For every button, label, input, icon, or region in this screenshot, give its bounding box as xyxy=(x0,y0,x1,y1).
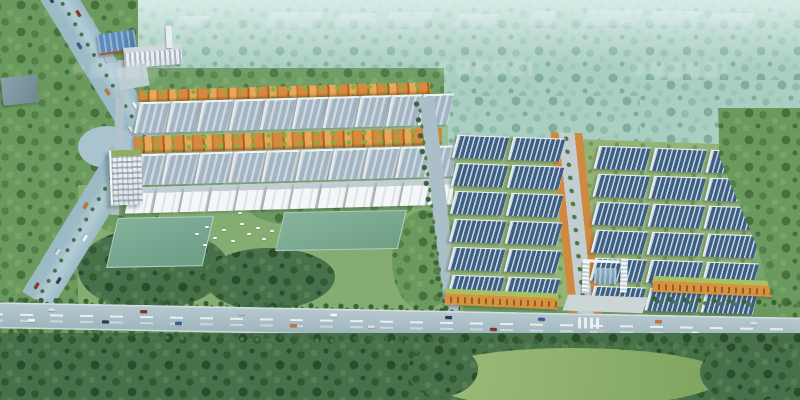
car xyxy=(48,0,54,3)
gray-roof-warehouse xyxy=(165,100,201,132)
car xyxy=(538,318,545,321)
solar-roof-warehouse xyxy=(508,137,566,162)
gray-roof-warehouse xyxy=(194,152,232,184)
car xyxy=(290,324,297,327)
bird xyxy=(222,229,226,231)
warehouse-row xyxy=(452,191,559,217)
car xyxy=(56,277,62,285)
gray-roof-warehouse xyxy=(354,95,390,127)
car xyxy=(368,325,375,328)
warehouse-row xyxy=(454,135,561,161)
car xyxy=(238,312,245,315)
office-tower xyxy=(109,149,143,205)
bird xyxy=(213,237,217,239)
white-facade-warehouse xyxy=(235,184,265,211)
solar-roof-warehouse xyxy=(702,234,760,259)
white-facade-warehouse xyxy=(345,181,375,208)
white-facade-warehouse xyxy=(317,181,347,208)
bird xyxy=(240,223,244,225)
gray-roof-warehouse xyxy=(323,96,359,128)
car xyxy=(75,10,81,18)
solar-roof-warehouse xyxy=(592,202,650,227)
solar-roof-warehouse xyxy=(505,221,563,246)
watermark-glyphs xyxy=(456,60,532,76)
car xyxy=(102,320,109,323)
gray-roof-warehouse xyxy=(260,98,296,130)
watermark xyxy=(438,55,538,81)
bird xyxy=(231,240,235,242)
bird xyxy=(262,238,266,240)
watermark xyxy=(632,57,732,83)
car xyxy=(750,322,757,325)
solar-roof-warehouse xyxy=(507,165,565,190)
gray-roof-warehouse xyxy=(291,97,327,129)
gate-tower-right xyxy=(620,258,628,292)
white-facade-warehouse xyxy=(262,183,292,210)
white-facade-warehouse xyxy=(180,185,210,212)
gray-roof-warehouse xyxy=(161,153,199,185)
car xyxy=(140,310,147,313)
warehouse-row xyxy=(450,247,557,273)
sports-field-west xyxy=(106,216,214,268)
entrance-gate xyxy=(559,254,656,315)
car xyxy=(82,234,88,242)
solar-roof-warehouse xyxy=(649,148,707,173)
car xyxy=(48,308,55,311)
bird xyxy=(270,230,274,232)
gate-glass-lobby xyxy=(594,268,617,285)
solar-roof-warehouse xyxy=(451,163,509,188)
watermark-logo-icon xyxy=(72,63,85,76)
car xyxy=(76,42,82,50)
bird xyxy=(247,233,251,235)
white-facade-warehouse xyxy=(152,186,182,213)
warehouse-row xyxy=(453,163,560,189)
bird xyxy=(203,244,207,246)
watermark xyxy=(72,57,172,83)
watermark-logo-icon xyxy=(632,63,645,76)
gray-roof-warehouse xyxy=(295,149,333,181)
gray-roof-warehouse xyxy=(328,148,366,180)
utility-shed xyxy=(1,74,40,106)
white-facade-warehouse xyxy=(372,180,402,207)
gray-roof-warehouse xyxy=(261,150,299,182)
warehouse-row xyxy=(451,219,558,245)
gate-plaza xyxy=(562,295,648,314)
solar-roof-warehouse xyxy=(648,176,706,201)
solar-roof-warehouse xyxy=(593,146,651,171)
car xyxy=(28,319,35,322)
solar-roof-warehouse xyxy=(647,204,705,229)
crosswalk xyxy=(578,317,600,328)
sports-field-east xyxy=(275,210,407,251)
car xyxy=(175,322,182,325)
watermark-glyphs xyxy=(650,62,726,78)
solar-roof-warehouse xyxy=(591,230,649,255)
car xyxy=(105,88,111,96)
watermark-glyphs xyxy=(90,62,166,78)
gray-roof-warehouse xyxy=(362,147,400,179)
solar-roof-warehouse xyxy=(449,219,507,244)
chimney-tower xyxy=(165,26,172,48)
bird xyxy=(256,227,260,229)
gray-roof-warehouse xyxy=(197,100,233,132)
solar-roof-warehouse xyxy=(593,174,651,199)
car xyxy=(330,314,337,317)
bird xyxy=(205,226,209,228)
watermark-logo-icon xyxy=(438,61,451,74)
bird xyxy=(195,233,199,235)
gray-roof-warehouse xyxy=(134,101,170,133)
solar-roof-warehouse xyxy=(448,247,506,272)
warehouse-row xyxy=(593,230,754,258)
industrial-park-aerial-render xyxy=(0,0,800,400)
gate-tower-left xyxy=(582,261,590,293)
gray-roof-warehouse xyxy=(228,151,266,183)
solar-roof-warehouse xyxy=(450,191,508,216)
grove xyxy=(700,342,800,400)
white-facade-warehouse xyxy=(290,182,320,209)
solar-roof-warehouse xyxy=(452,135,510,160)
car xyxy=(445,316,452,319)
gray-roof-warehouse xyxy=(228,99,264,131)
solar-roof-warehouse xyxy=(647,232,705,257)
solar-roof-warehouse xyxy=(506,193,564,218)
solar-roof-warehouse xyxy=(504,249,562,274)
car xyxy=(490,328,497,331)
white-facade-warehouse xyxy=(207,184,237,211)
warehouse-row xyxy=(594,202,755,230)
car xyxy=(655,320,662,323)
